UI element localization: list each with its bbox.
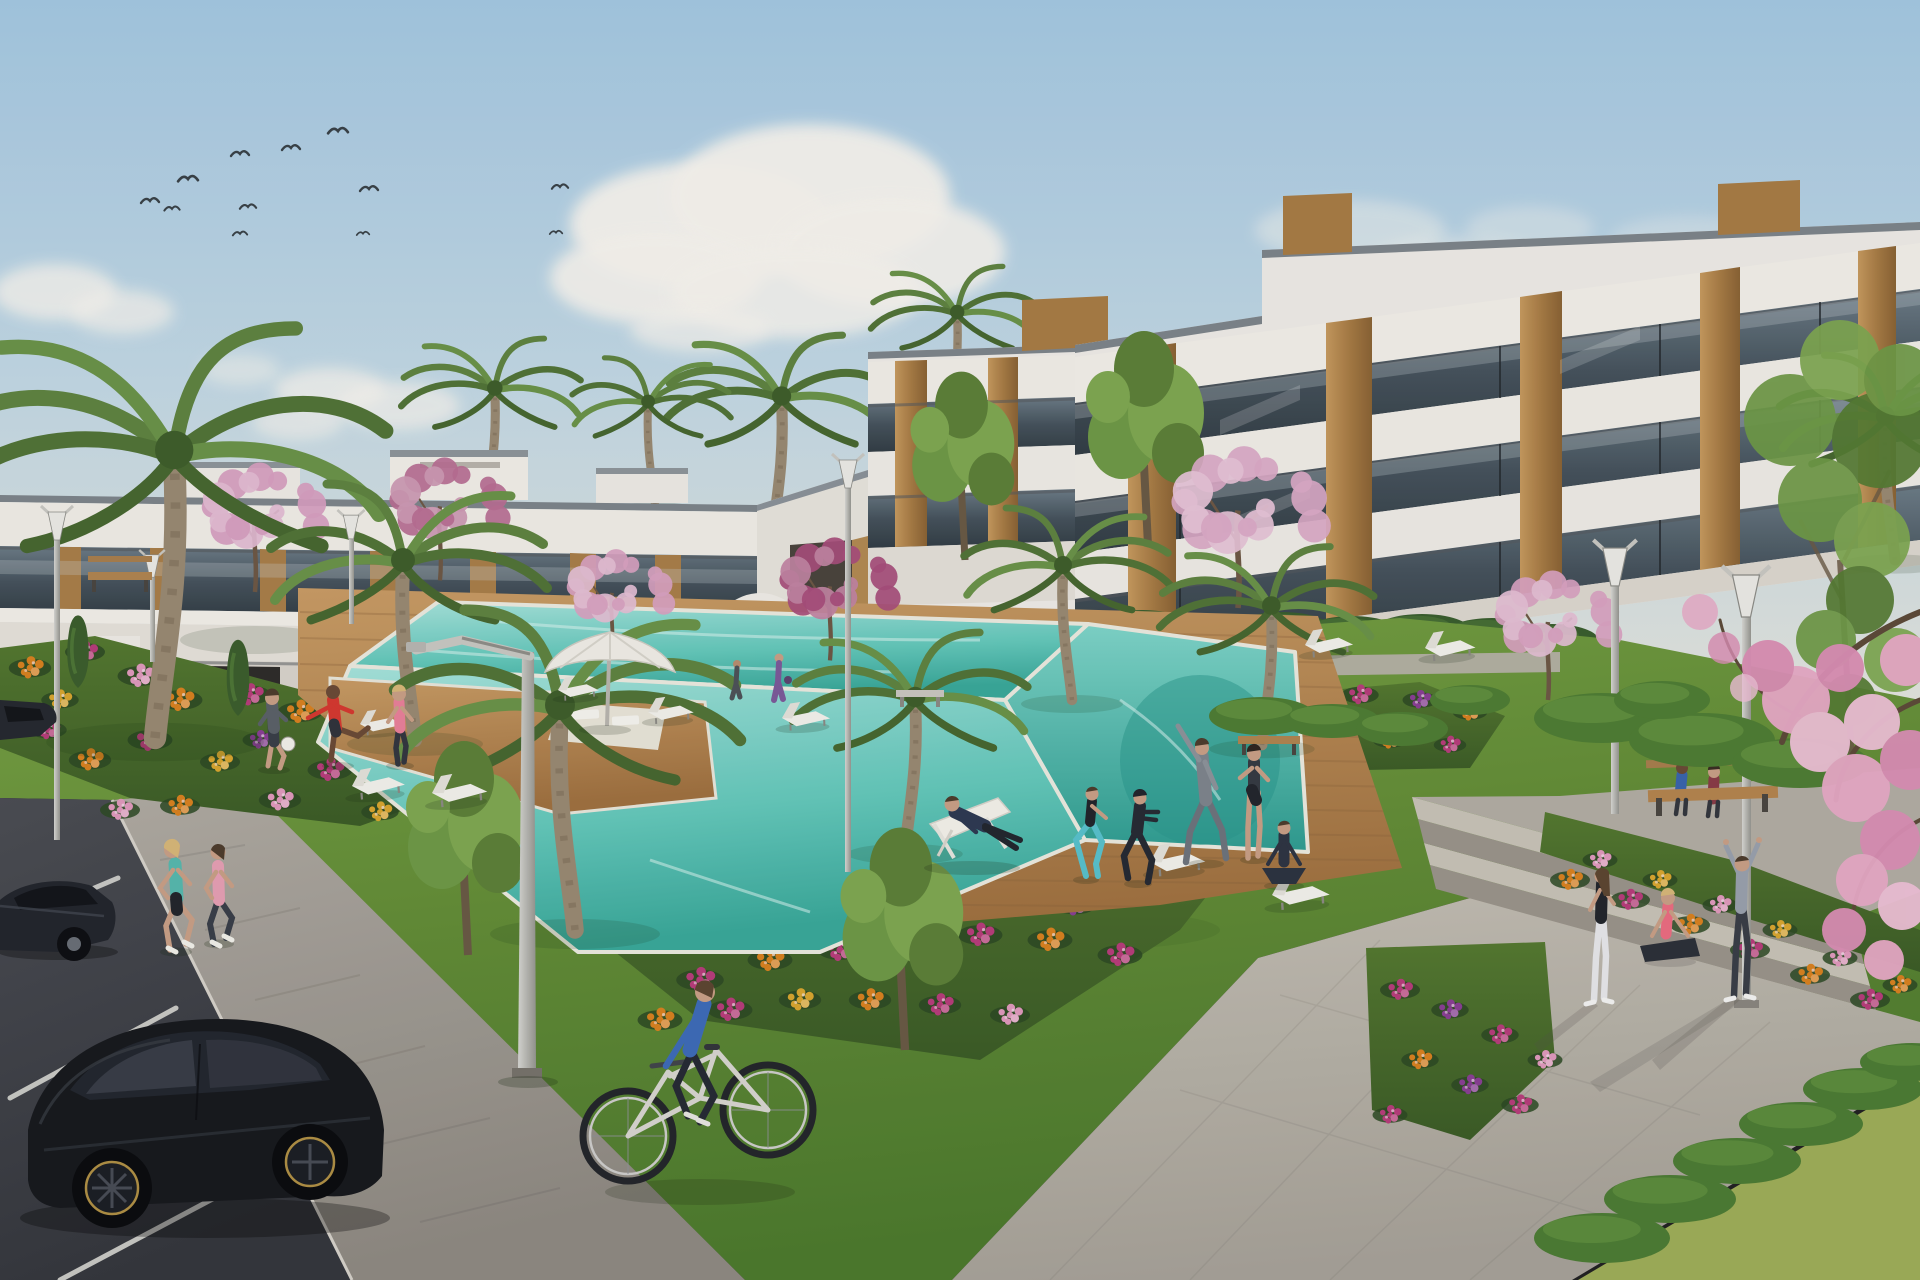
vignette-overlay [0,0,1920,1280]
architectural-render [0,0,1920,1280]
render-canvas [0,0,1920,1280]
